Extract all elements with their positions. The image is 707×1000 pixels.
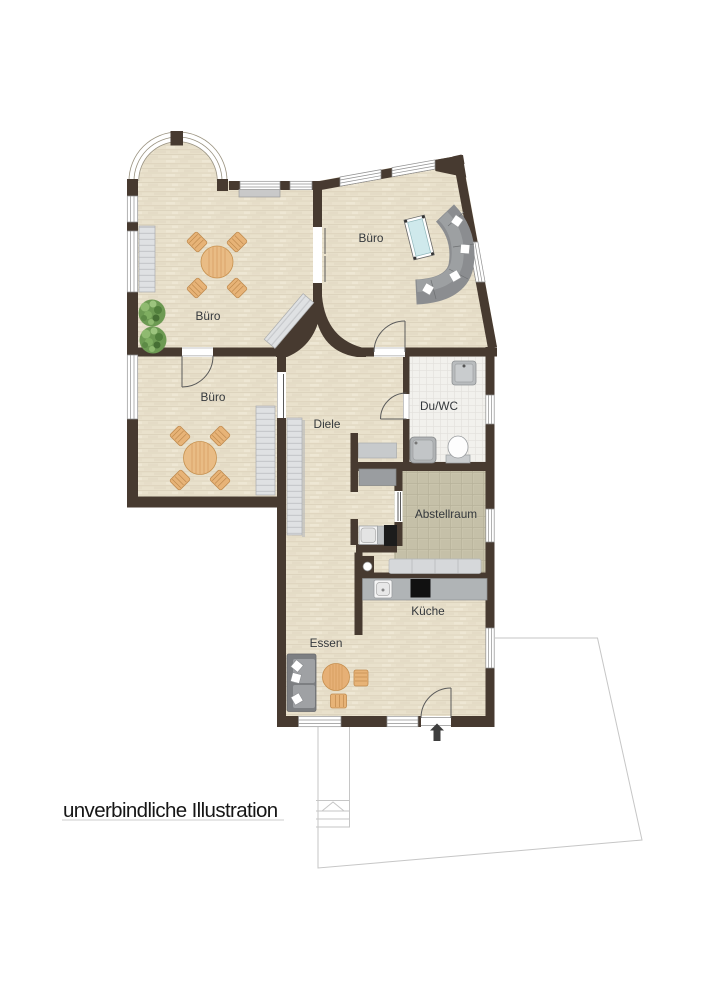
svg-text:Büro: Büro	[359, 231, 384, 245]
svg-text:Abstellraum: Abstellraum	[415, 507, 477, 521]
svg-text:Essen: Essen	[310, 636, 343, 650]
svg-text:Küche: Küche	[411, 604, 445, 618]
svg-text:Büro: Büro	[201, 390, 226, 404]
svg-text:Diele: Diele	[314, 417, 341, 431]
svg-text:Du/WC: Du/WC	[420, 399, 458, 413]
svg-text:unverbindliche Illustration: unverbindliche Illustration	[63, 799, 278, 822]
svg-text:Büro: Büro	[196, 309, 221, 323]
